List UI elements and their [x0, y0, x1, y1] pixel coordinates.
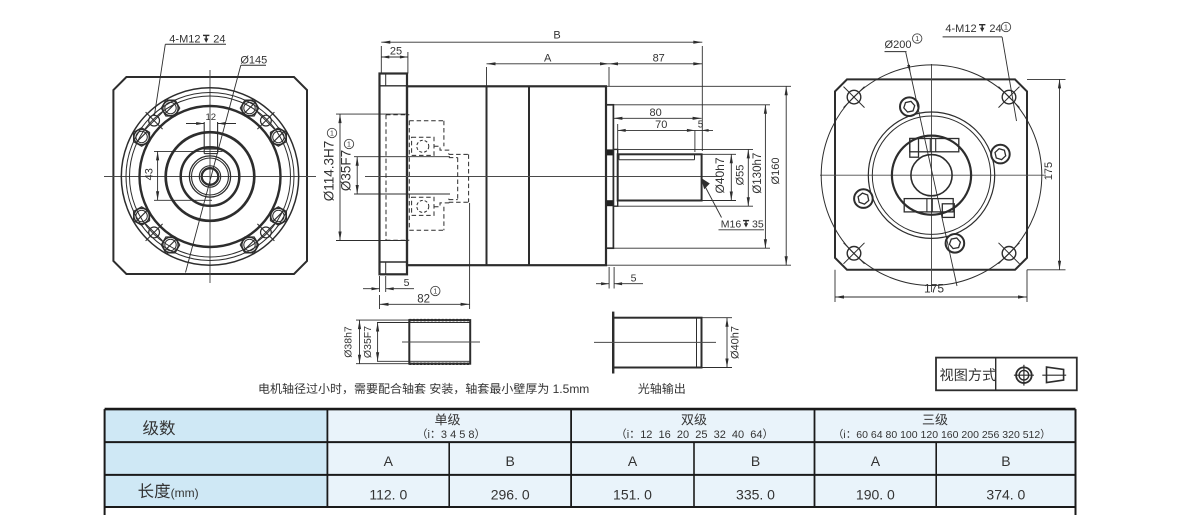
svg-text:1: 1	[330, 131, 334, 138]
svg-text:190. 0: 190. 0	[856, 487, 895, 503]
svg-text:i: i	[843, 429, 845, 441]
svg-text:(mm): (mm)	[171, 486, 199, 500]
svg-text:5: 5	[404, 277, 410, 289]
svg-text:60 64 80 100 120 160 200 256 3: 60 64 80 100 120 160 200 256 320 512	[856, 429, 1040, 441]
svg-text:175: 175	[1043, 162, 1055, 180]
svg-text:B: B	[751, 453, 760, 469]
svg-text:1: 1	[433, 289, 437, 296]
svg-text:i: i	[627, 429, 629, 441]
svg-text:A: A	[384, 453, 394, 469]
svg-text:Ø35F7: Ø35F7	[338, 150, 353, 191]
svg-text:175: 175	[924, 282, 944, 296]
svg-text:12: 12	[206, 112, 217, 123]
svg-text:1: 1	[1004, 25, 1008, 32]
svg-text:i: i	[428, 429, 430, 441]
svg-text:80: 80	[649, 107, 661, 119]
svg-text:Ø38h7: Ø38h7	[343, 326, 355, 358]
svg-text:1.5mm: 1.5mm	[549, 382, 589, 396]
svg-text:374. 0: 374. 0	[986, 487, 1025, 503]
svg-text:Ø55: Ø55	[735, 165, 747, 186]
svg-text:Ø160: Ø160	[770, 158, 782, 185]
svg-text:Ø114.3H7: Ø114.3H7	[322, 141, 337, 202]
svg-text:Ø130h7: Ø130h7	[752, 153, 764, 194]
svg-text:35: 35	[752, 219, 764, 231]
svg-text:B: B	[1001, 453, 1010, 469]
svg-text:1: 1	[915, 36, 919, 43]
svg-text:25: 25	[390, 46, 402, 58]
svg-text:4-M12: 4-M12	[945, 23, 976, 35]
svg-text:1: 1	[347, 142, 351, 149]
svg-text:335. 0: 335. 0	[736, 487, 775, 503]
svg-text:5: 5	[631, 273, 637, 285]
svg-text:Ø40h7: Ø40h7	[730, 326, 742, 359]
svg-text:12 16 20 25 32 40 64: 12 16 20 25 32 40 64	[640, 429, 762, 441]
svg-text:112. 0: 112. 0	[369, 487, 407, 503]
svg-text:296. 0: 296. 0	[491, 487, 530, 503]
svg-text:70: 70	[655, 119, 667, 131]
svg-text:3 4 5 8: 3 4 5 8	[441, 429, 475, 441]
svg-text:M16: M16	[721, 219, 742, 231]
svg-text:A: A	[871, 453, 881, 469]
svg-text:24: 24	[989, 23, 1001, 35]
svg-text:82: 82	[417, 293, 430, 305]
svg-text:43: 43	[143, 168, 155, 180]
svg-text:87: 87	[653, 52, 665, 64]
svg-text:Ø35F7: Ø35F7	[362, 326, 374, 358]
svg-text:Ø40h7: Ø40h7	[713, 157, 727, 193]
svg-text:A: A	[628, 453, 638, 469]
svg-text:A: A	[544, 52, 552, 64]
svg-text:151. 0: 151. 0	[613, 487, 652, 503]
svg-text:Ø200: Ø200	[885, 39, 912, 51]
svg-text:B: B	[506, 453, 515, 469]
svg-text:B: B	[553, 29, 560, 41]
svg-text:5: 5	[698, 120, 704, 131]
